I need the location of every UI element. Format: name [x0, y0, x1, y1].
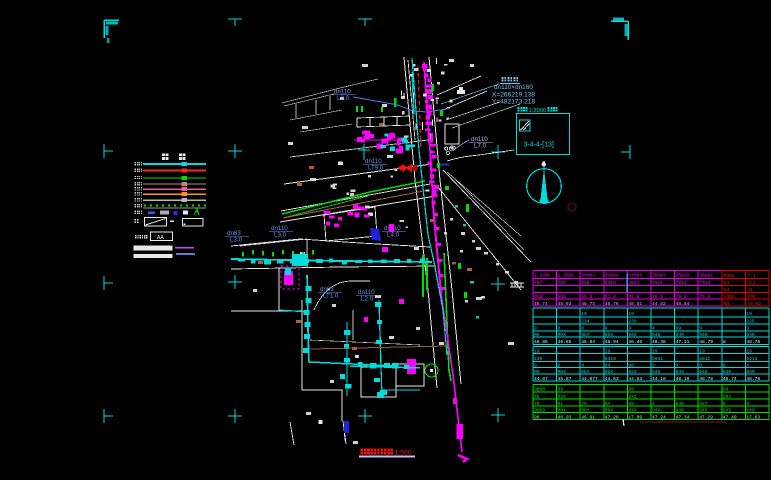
svg-text:949: 949 — [723, 408, 732, 414]
svg-text:9: 9 — [628, 326, 631, 332]
svg-text:1:500: 1:500 — [395, 450, 412, 457]
svg-text:9: 9 — [534, 326, 537, 332]
svg-text:MHX: MHX — [558, 369, 567, 375]
svg-text:48.78: 48.78 — [746, 339, 760, 345]
svg-text:98: 98 — [628, 363, 634, 369]
svg-text:234: 234 — [581, 319, 590, 325]
svg-text:8: 8 — [558, 326, 561, 332]
svg-text:5912: 5912 — [699, 356, 710, 362]
svg-text:98: 98 — [534, 415, 540, 421]
svg-text:+8.02: +8.02 — [747, 301, 761, 307]
svg-text:44.63: 44.63 — [605, 376, 619, 382]
svg-text:99: 99 — [628, 387, 634, 393]
svg-text:9bY: 9bY — [581, 332, 590, 338]
svg-text:A4@A: A4@A — [724, 294, 735, 300]
svg-text:38&8Y: 38&8Y — [699, 273, 713, 279]
svg-text:L3.0: L3.0 — [274, 232, 287, 239]
svg-text:940: 940 — [676, 401, 685, 407]
svg-text:949: 949 — [676, 332, 685, 338]
svg-text:9: 9 — [699, 363, 702, 369]
svg-text:54: 54 — [724, 280, 730, 286]
svg-text:9: 9 — [746, 401, 749, 407]
svg-text:48.78: 48.78 — [746, 376, 760, 382]
svg-text:47.11: 47.11 — [676, 339, 690, 345]
svg-text:99.8: 99.8 — [581, 294, 592, 300]
svg-text:765: 765 — [558, 280, 567, 286]
svg-text:949: 949 — [746, 332, 755, 338]
svg-text:7914: 7914 — [699, 280, 710, 286]
svg-text:949: 949 — [652, 332, 661, 338]
svg-text:46.94: 46.94 — [605, 339, 619, 345]
svg-text:34%8A: 34%8A — [581, 273, 595, 279]
svg-text:PH92: PH92 — [724, 273, 735, 279]
svg-text:48.74: 48.74 — [534, 301, 548, 307]
svg-text:949: 949 — [676, 408, 685, 414]
svg-text:47.34: 47.34 — [676, 415, 690, 421]
svg-text:dn110×dn160: dn110×dn160 — [494, 84, 533, 91]
svg-text:L3.0: L3.0 — [230, 237, 243, 244]
svg-text:L2.0: L2.0 — [361, 296, 374, 303]
svg-text:5213: 5213 — [746, 356, 757, 362]
svg-text:4: 4 — [581, 363, 584, 369]
svg-text:8: 8 — [558, 363, 561, 369]
svg-text:4: 4 — [652, 326, 655, 332]
svg-text:9: 9 — [652, 363, 655, 369]
svg-text:48.81: 48.81 — [628, 301, 642, 307]
svg-text:79.8: 79.8 — [652, 294, 663, 300]
svg-text:47.24: 47.24 — [652, 415, 666, 421]
svg-text:LT1.0: LT1.0 — [323, 293, 339, 300]
svg-text:949: 949 — [652, 369, 661, 375]
svg-text:949: 949 — [746, 408, 755, 414]
svg-text:9bX: 9bX — [605, 369, 614, 375]
svg-text:95: 95 — [534, 394, 540, 400]
svg-text:239: 239 — [534, 356, 543, 362]
svg-text:MH: MH — [534, 332, 540, 338]
svg-text:99: 99 — [676, 326, 682, 332]
svg-text:47.49: 47.49 — [723, 415, 737, 421]
svg-text:9: 9 — [746, 326, 749, 332]
svg-text:38&8A: 38&8A — [676, 273, 690, 279]
svg-text:1.24MA: 1.24MA — [534, 273, 551, 279]
svg-text:9L: 9L — [558, 401, 564, 407]
svg-text:9bY: 9bY — [581, 369, 590, 375]
svg-text:AA: AA — [157, 235, 164, 241]
svg-text:5931: 5931 — [652, 356, 663, 362]
svg-text:99.8: 99.8 — [628, 294, 639, 300]
svg-text:46.46: 46.46 — [628, 339, 642, 345]
svg-text:19: 19 — [581, 311, 587, 317]
svg-text:4: 4 — [746, 363, 749, 369]
svg-text:17.63: 17.63 — [746, 415, 760, 421]
svg-text:L4.0: L4.0 — [387, 232, 400, 239]
svg-text:9A: 9A — [605, 401, 611, 407]
svg-text:45.87: 45.87 — [558, 376, 572, 382]
svg-text:79.8: 79.8 — [699, 294, 710, 300]
svg-text:949: 949 — [676, 369, 685, 375]
svg-text:949: 949 — [746, 369, 755, 375]
svg-text:9419: 9419 — [605, 280, 616, 286]
svg-text:9@: 9@ — [724, 301, 730, 307]
svg-text:9: 9 — [534, 363, 537, 369]
svg-text:9@99: 9@99 — [534, 408, 545, 414]
svg-text:79: 79 — [534, 401, 540, 407]
svg-text:48.76: 48.76 — [605, 301, 619, 307]
svg-text:9@98: 9@98 — [534, 387, 545, 393]
svg-text:48.79: 48.79 — [699, 339, 713, 345]
svg-text:LT9.0: LT9.0 — [368, 165, 384, 172]
svg-text:9%8: 9%8 — [558, 294, 567, 300]
svg-text:239: 239 — [628, 319, 637, 325]
svg-text:19: 19 — [652, 349, 658, 355]
svg-text:94: 94 — [723, 387, 729, 393]
svg-text:44.82: 44.82 — [652, 301, 666, 307]
svg-text:4: 4 — [605, 326, 608, 332]
svg-text:MHX: MHX — [558, 408, 567, 414]
svg-text:1.45@A: 1.45@A — [558, 273, 575, 279]
svg-text:31: 31 — [747, 287, 753, 293]
svg-text:34: 34 — [724, 287, 730, 293]
svg-text:46.91: 46.91 — [581, 415, 595, 421]
svg-text:79.8: 79.8 — [676, 294, 687, 300]
svg-text:94X: 94X — [628, 369, 637, 375]
svg-text:946: 946 — [581, 280, 590, 286]
svg-text:9bY: 9bY — [581, 408, 590, 414]
svg-text:48.10: 48.10 — [676, 376, 690, 382]
svg-text:48.74: 48.74 — [723, 376, 737, 382]
svg-text:19: 19 — [746, 311, 752, 317]
svg-text:91.8: 91.8 — [605, 294, 616, 300]
svg-text:34%8Y: 34%8Y — [628, 273, 642, 279]
svg-text:949: 949 — [699, 369, 708, 375]
svg-text:8: 8 — [581, 326, 584, 332]
svg-text:Y=482173.218: Y=482173.218 — [492, 99, 535, 106]
svg-text:98: 98 — [628, 401, 634, 407]
svg-text:X=266219.138: X=266219.138 — [492, 92, 535, 99]
svg-text:44.077: 44.077 — [581, 376, 598, 382]
svg-text:767: 767 — [534, 280, 543, 286]
svg-text:4811: 4811 — [628, 280, 639, 286]
svg-text:9bX: 9bX — [605, 332, 614, 338]
svg-text:47.29: 47.29 — [699, 415, 713, 421]
svg-text:7912: 7912 — [676, 280, 687, 286]
svg-text:79: 79 — [581, 401, 587, 407]
svg-text:19: 19 — [605, 349, 611, 355]
svg-text:987: 987 — [699, 401, 708, 407]
svg-text:39%8Y: 39%8Y — [652, 273, 666, 279]
svg-text:7:1: 7:1 — [747, 273, 756, 279]
svg-text:4: 4 — [652, 401, 655, 407]
svg-text:7911: 7911 — [652, 280, 663, 286]
svg-text:m: m — [723, 340, 726, 345]
svg-text:MH: MH — [534, 369, 540, 375]
svg-text:46.93: 46.93 — [558, 415, 572, 421]
svg-text:2X2: 2X2 — [628, 394, 637, 400]
svg-text:020: 020 — [558, 394, 567, 400]
svg-text:5310: 5310 — [605, 356, 616, 362]
svg-text:8: 8 — [723, 363, 726, 369]
svg-text:MHX: MHX — [558, 332, 567, 338]
svg-text:99: 99 — [558, 387, 564, 393]
svg-text:48.63: 48.63 — [558, 301, 572, 307]
svg-text:L3.0: L3.0 — [337, 95, 350, 102]
svg-text:34%8A: 34%8A — [605, 273, 619, 279]
svg-text:48.78: 48.78 — [699, 376, 713, 382]
svg-text:3-4-4-[13]: 3-4-4-[13] — [524, 142, 554, 149]
svg-text:9: 9 — [723, 401, 726, 407]
svg-text:949: 949 — [699, 408, 708, 414]
svg-text:2L1: 2L1 — [747, 280, 756, 286]
svg-text:94X: 94X — [652, 408, 661, 414]
svg-text:17.09: 17.09 — [628, 415, 642, 421]
svg-text:4: 4 — [676, 363, 679, 369]
svg-text:998: 998 — [747, 294, 756, 300]
svg-text:L7.0: L7.0 — [474, 143, 487, 150]
svg-text:19: 19 — [699, 349, 705, 355]
svg-text:44.87: 44.87 — [534, 376, 548, 382]
svg-text:19: 19 — [534, 349, 540, 355]
svg-text:9%8: 9%8 — [534, 294, 543, 300]
svg-text:9: 9 — [699, 326, 702, 332]
svg-text:19: 19 — [628, 311, 634, 317]
svg-text:94: 94 — [605, 363, 611, 369]
svg-text:47.28: 47.28 — [605, 415, 619, 421]
svg-text:94X: 94X — [628, 408, 637, 414]
svg-text:46.48: 46.48 — [652, 339, 666, 345]
svg-text:9bX: 9bX — [605, 408, 614, 414]
svg-text:949: 949 — [723, 369, 732, 375]
svg-text:44.10: 44.10 — [652, 376, 666, 382]
svg-text:225: 225 — [746, 319, 755, 325]
svg-text:48.86: 48.86 — [534, 339, 548, 345]
svg-text:46.84: 46.84 — [581, 339, 595, 345]
svg-text:94X: 94X — [628, 332, 637, 338]
svg-text:44.53: 44.53 — [628, 376, 642, 382]
svg-text:949: 949 — [699, 332, 708, 338]
svg-text:48.73: 48.73 — [581, 301, 595, 307]
svg-text:46.85: 46.85 — [558, 339, 572, 345]
svg-text:203: 203 — [723, 394, 732, 400]
svg-text:48.84: 48.84 — [676, 301, 690, 307]
svg-text:19: 19 — [746, 349, 752, 355]
